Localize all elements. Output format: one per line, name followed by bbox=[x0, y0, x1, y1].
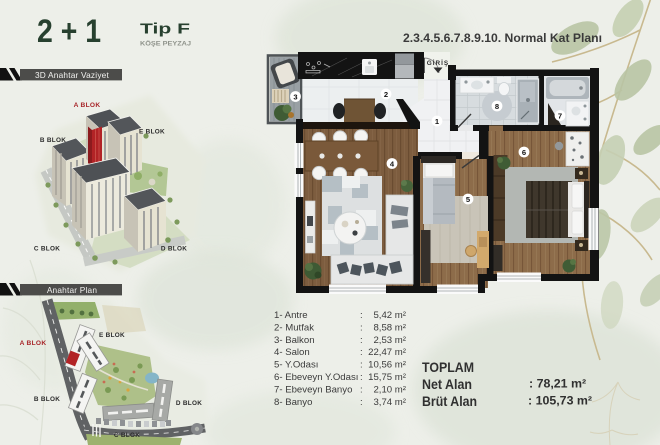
svg-text:3,74 m²: 3,74 m² bbox=[373, 397, 406, 408]
svg-text:10,56 m²: 10,56 m² bbox=[368, 360, 407, 371]
svg-text:: 105,73 m²: : 105,73 m² bbox=[528, 394, 592, 408]
svg-text:A BLOK: A BLOK bbox=[20, 340, 47, 347]
svg-text:7: 7 bbox=[558, 112, 562, 121]
svg-text:B BLOK: B BLOK bbox=[34, 396, 60, 403]
svg-text::: : bbox=[360, 397, 363, 408]
svg-text:8: 8 bbox=[495, 102, 499, 111]
svg-text:Brüt Alan: Brüt Alan bbox=[422, 394, 477, 409]
svg-text:1- Antre: 1- Antre bbox=[274, 310, 308, 321]
svg-text:7- Ebeveyn Banyo: 7- Ebeveyn Banyo bbox=[274, 384, 352, 395]
svg-text:E BLOK: E BLOK bbox=[139, 129, 165, 136]
svg-text:Anahtar Plan: Anahtar Plan bbox=[47, 285, 98, 295]
svg-text:22,47 m²: 22,47 m² bbox=[368, 347, 407, 358]
svg-text:B BLOK: B BLOK bbox=[40, 137, 66, 144]
svg-text:D BLOK: D BLOK bbox=[161, 246, 187, 253]
svg-text:15,75 m²: 15,75 m² bbox=[368, 372, 407, 383]
svg-text::: : bbox=[360, 384, 363, 395]
svg-text::: : bbox=[360, 347, 363, 358]
svg-text:3D Anahtar Vaziyet: 3D Anahtar Vaziyet bbox=[35, 70, 110, 80]
svg-text:5,42 m²: 5,42 m² bbox=[373, 310, 406, 321]
svg-text:TOPLAM: TOPLAM bbox=[422, 359, 474, 375]
svg-text::: : bbox=[360, 360, 363, 371]
svg-text:3- Balkon: 3- Balkon bbox=[274, 335, 315, 346]
svg-text:KÖŞE PEYZAJ: KÖŞE PEYZAJ bbox=[140, 39, 191, 48]
svg-text::: : bbox=[360, 372, 363, 383]
svg-text:2 + 1: 2 + 1 bbox=[37, 13, 101, 49]
svg-text::: : bbox=[360, 310, 363, 321]
svg-text:E BLOK: E BLOK bbox=[99, 332, 125, 339]
svg-text:Net Alan: Net Alan bbox=[422, 377, 472, 392]
svg-text:6- Ebeveyn Y.Odası: 6- Ebeveyn Y.Odası bbox=[274, 372, 358, 383]
svg-text:C BLOK: C BLOK bbox=[34, 246, 60, 253]
svg-text:8- Banyo: 8- Banyo bbox=[274, 397, 312, 408]
svg-text:2,10 m²: 2,10 m² bbox=[373, 384, 406, 395]
svg-text:: 78,21 m²: : 78,21 m² bbox=[529, 377, 586, 391]
svg-text:2: 2 bbox=[384, 90, 388, 99]
svg-text:GİRİŞ: GİRİŞ bbox=[427, 58, 449, 67]
svg-text::: : bbox=[360, 322, 363, 333]
svg-text:3: 3 bbox=[293, 93, 297, 102]
svg-text:4- Salon: 4- Salon bbox=[274, 347, 310, 358]
svg-text:8,58 m²: 8,58 m² bbox=[373, 322, 406, 333]
svg-text:5- Y.Odası: 5- Y.Odası bbox=[274, 360, 318, 371]
svg-text:6: 6 bbox=[522, 148, 526, 157]
svg-text:2.3.4.5.6.7.8.9.10. Normal Kat: 2.3.4.5.6.7.8.9.10. Normal Kat Planı bbox=[403, 31, 602, 45]
svg-text:C BLOK: C BLOK bbox=[114, 432, 140, 439]
svg-text:A BLOK: A BLOK bbox=[74, 102, 101, 109]
svg-text:2,53 m²: 2,53 m² bbox=[373, 335, 406, 346]
svg-text::: : bbox=[360, 335, 363, 346]
svg-text:Tip F: Tip F bbox=[140, 21, 190, 38]
svg-text:D BLOK: D BLOK bbox=[176, 400, 202, 407]
svg-text:2- Mutfak: 2- Mutfak bbox=[274, 322, 314, 333]
